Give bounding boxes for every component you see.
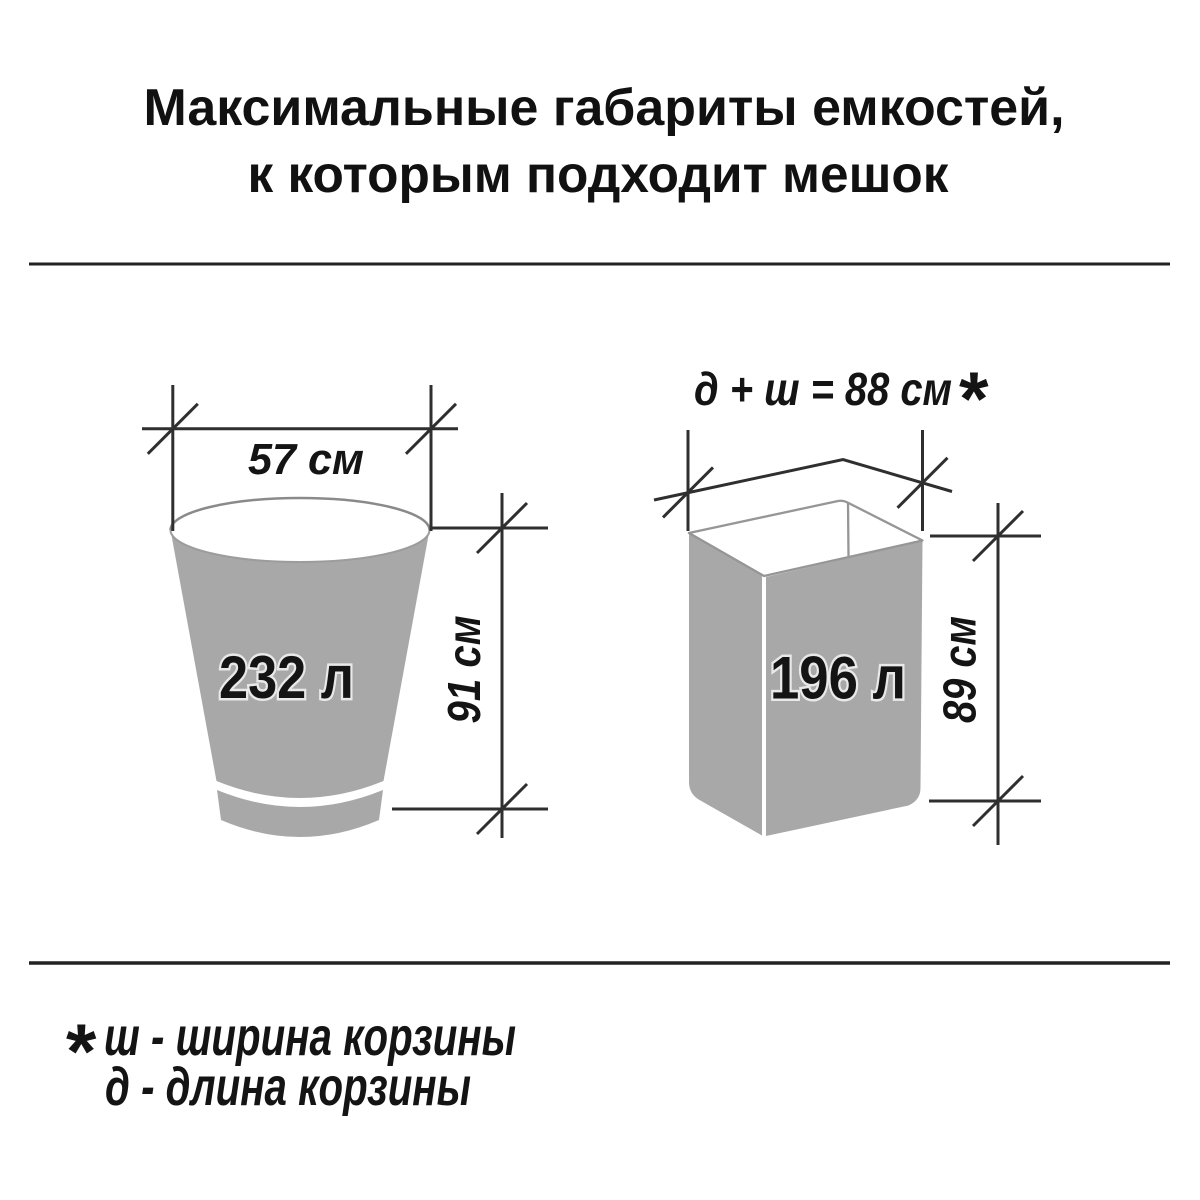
svg-text:89 см: 89 см [934, 616, 986, 723]
svg-text:91 см: 91 см [438, 616, 490, 724]
svg-text:57 см: 57 см [248, 435, 364, 484]
svg-text:д - длина корзины: д - длина корзины [105, 1057, 471, 1117]
svg-text:*: * [66, 1007, 97, 1095]
svg-text:*: * [959, 357, 989, 442]
svg-text:Максимальные габариты емкостей: Максимальные габариты емкостей, [144, 79, 1065, 137]
svg-text:196 л: 196 л [770, 645, 906, 712]
svg-text:к которым подходит мешок: к которым подходит мешок [248, 146, 950, 204]
svg-text:232 л: 232 л [219, 644, 354, 711]
svg-text:д + ш = 88 см: д + ш = 88 см [694, 363, 952, 415]
